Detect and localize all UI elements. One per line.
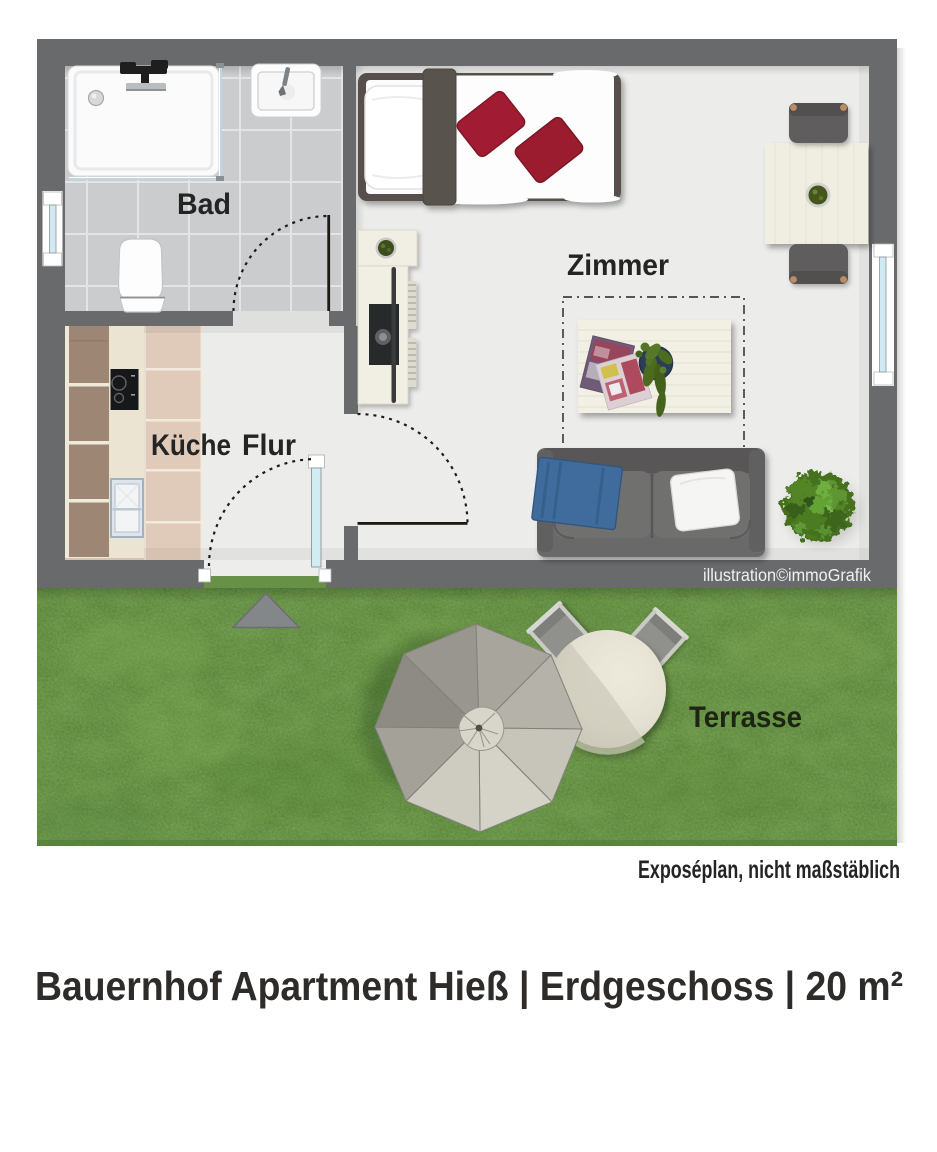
- svg-text:Küche: Küche: [151, 429, 231, 462]
- svg-text:Zimmer: Zimmer: [567, 249, 669, 282]
- svg-text:illustration©immoGrafik: illustration©immoGrafik: [703, 565, 871, 585]
- svg-text:Bauernhof Apartment Hieß | Erd: Bauernhof Apartment Hieß | Erdgeschoss |…: [35, 963, 903, 1009]
- svg-text:Terrasse: Terrasse: [689, 701, 802, 734]
- svg-text:Flur: Flur: [242, 429, 296, 462]
- svg-text:Exposéplan, nicht maßstäblich: Exposéplan, nicht maßstäblich: [638, 856, 900, 884]
- svg-text:Bad: Bad: [177, 188, 231, 221]
